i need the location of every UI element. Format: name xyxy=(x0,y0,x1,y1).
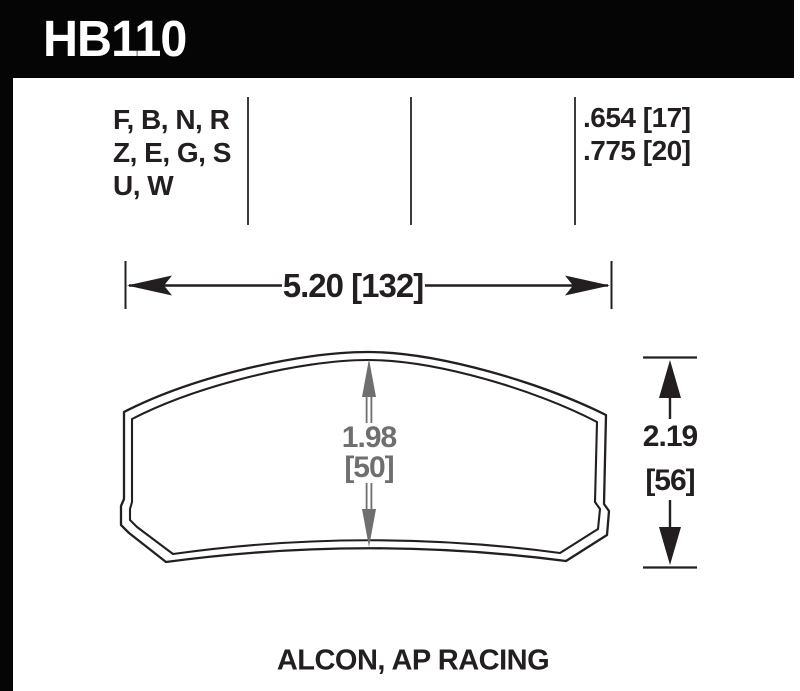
overall-height-dimension-label-mm: [56] xyxy=(645,464,694,498)
inner-height-dimension-label-mm: [50] xyxy=(344,451,393,485)
width-dimension-label: 5.20 [132] xyxy=(283,267,423,305)
inner-height-dimension-label: 1.98 xyxy=(342,421,396,455)
dim-arrow-down-icon xyxy=(659,527,681,565)
overall-height-dimension-label: 2.19 xyxy=(643,420,697,454)
pad-technical-drawing xyxy=(0,0,800,691)
dim-arrow-up-icon xyxy=(362,359,376,397)
dim-arrow-up-icon xyxy=(659,360,681,398)
applications-label: ALCON, AP RACING xyxy=(277,645,549,678)
overall-height-dimension xyxy=(643,358,697,568)
brake-pad-spec-diagram: HB110 F, B, N, R Z, E, G, S U, W .654 [1… xyxy=(0,0,800,691)
